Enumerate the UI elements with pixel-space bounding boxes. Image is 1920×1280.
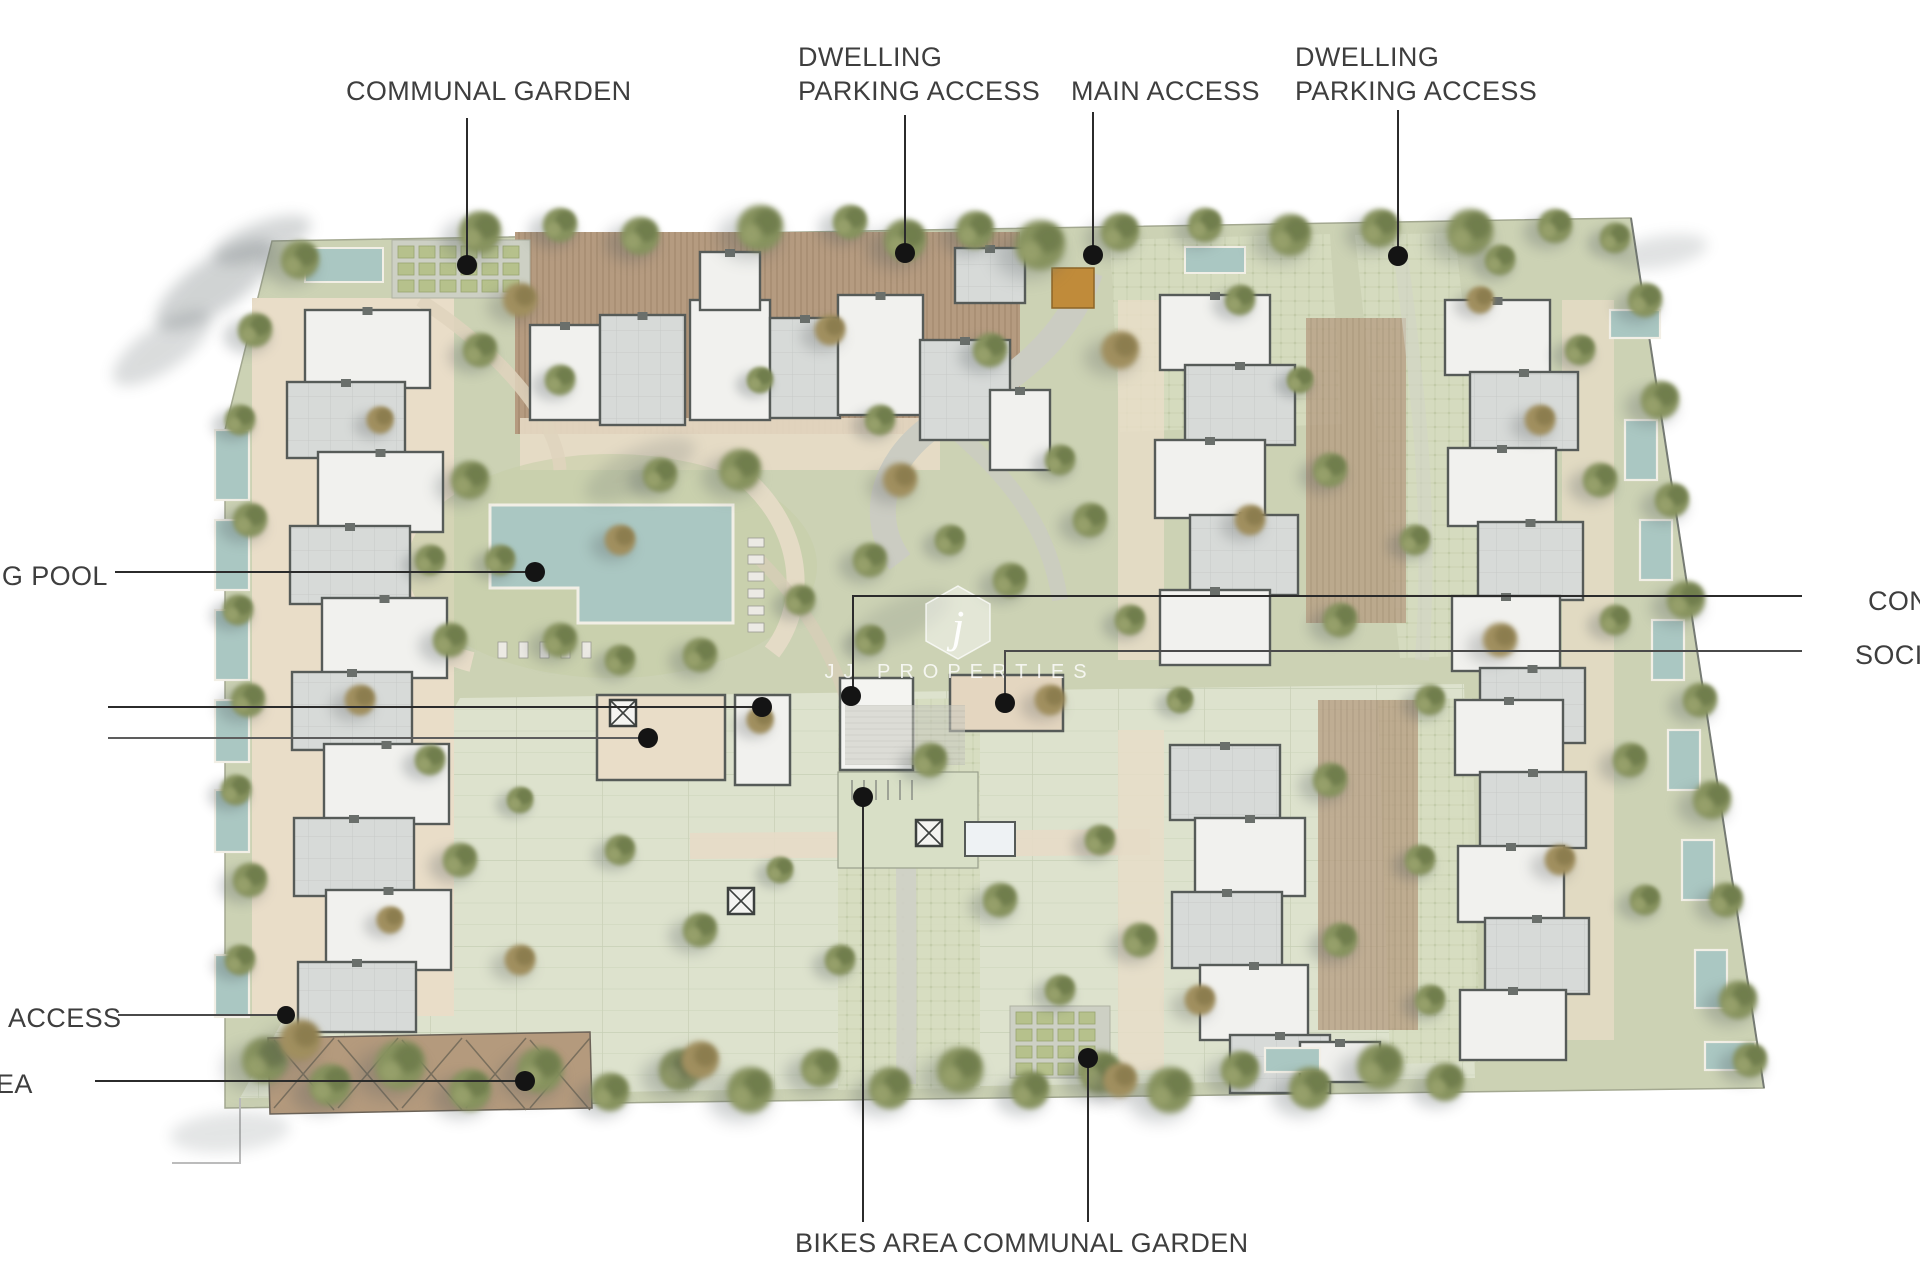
garden-bed <box>1016 1012 1032 1024</box>
roof-vent <box>341 379 351 387</box>
building-roof <box>1455 700 1563 775</box>
building-roof <box>1172 892 1282 968</box>
label-concierge-truncated: CON <box>1868 584 1920 618</box>
roof-vent <box>380 595 390 603</box>
callout-dot <box>1388 246 1408 266</box>
garden-bed <box>482 280 498 292</box>
building-roof <box>1480 772 1586 848</box>
building-roof <box>600 315 685 425</box>
roof-vent <box>1532 915 1542 923</box>
garden-bed <box>419 280 435 292</box>
roof-vent <box>352 959 362 967</box>
garden-bed <box>1037 1063 1053 1075</box>
callout-dot <box>1083 245 1103 265</box>
sun-lounger <box>748 606 764 615</box>
sun-lounger <box>748 538 764 547</box>
building-roof <box>700 252 760 310</box>
roof-vent <box>1526 519 1536 527</box>
private-pool <box>1668 730 1700 790</box>
building-roof <box>305 310 430 388</box>
roof-vent <box>1235 362 1245 370</box>
roof-vent <box>1508 987 1518 995</box>
label-main-access: MAIN ACCESS <box>1071 74 1260 108</box>
garden-bed <box>1037 1046 1053 1058</box>
roof-vent <box>376 449 386 457</box>
label-access-truncated: ACCESS <box>8 1001 121 1035</box>
building-roof <box>290 526 410 604</box>
label-area-truncated: EA <box>0 1067 33 1101</box>
building-roof <box>1460 990 1566 1060</box>
garden-bed <box>1037 1012 1053 1024</box>
roof-vent <box>363 307 373 315</box>
callout-dot <box>457 255 477 275</box>
callout-dot <box>995 693 1015 713</box>
garden-bed <box>1058 1046 1074 1058</box>
roof-vent <box>1275 1032 1285 1040</box>
roof-vent <box>1222 889 1232 897</box>
label-line: DWELLING <box>1295 40 1537 74</box>
garden-bed <box>482 263 498 275</box>
garden-bed <box>398 280 414 292</box>
roof-vent <box>1506 843 1516 851</box>
callout-dot <box>525 562 545 582</box>
building-roof <box>318 452 443 532</box>
garden-bed <box>419 246 435 258</box>
roof-vent <box>1497 445 1507 453</box>
sun-lounger <box>748 555 764 564</box>
label-dwelling-parking-left: DWELLING PARKING ACCESS <box>798 40 1040 108</box>
callout-dot <box>841 686 861 706</box>
building-roof <box>1170 745 1280 820</box>
label-bikes-area: BIKES AREA <box>795 1226 958 1260</box>
callout-dot <box>277 1006 295 1024</box>
roof-vent <box>384 887 394 895</box>
building-roof <box>838 295 923 415</box>
roof-vent <box>1504 697 1514 705</box>
building-roof <box>1478 522 1583 600</box>
site-plan-canvas: j JJ PROPERTIES COMMUNAL GARDEN DWELLING… <box>0 0 1920 1280</box>
garden-bed <box>461 280 477 292</box>
roof-vent <box>1249 962 1259 970</box>
callout-dot <box>515 1071 535 1091</box>
garden-bed <box>1016 1046 1032 1058</box>
label-communal-garden-top: COMMUNAL GARDEN <box>346 74 632 108</box>
building-roof <box>1185 365 1295 445</box>
building-roof <box>294 818 414 896</box>
private-pool <box>1640 520 1672 580</box>
garden-bed <box>1079 1029 1095 1041</box>
roof-vent <box>1519 369 1529 377</box>
roof-vent <box>1220 742 1230 750</box>
label-social-truncated: SOCIA <box>1855 638 1920 672</box>
building-roof <box>298 962 416 1032</box>
building-roof <box>1195 818 1305 896</box>
garden-bed <box>1058 1012 1074 1024</box>
roof-vent <box>1205 437 1215 445</box>
roof-vent <box>1335 1039 1345 1047</box>
garden-bed <box>503 263 519 275</box>
label-line: PARKING ACCESS <box>798 74 1040 108</box>
main-access-gate <box>1052 268 1094 308</box>
garden-bed <box>419 263 435 275</box>
callout-dot <box>853 787 873 807</box>
roof-vent <box>1015 387 1025 395</box>
building-roof <box>1448 448 1556 526</box>
roof-vent <box>1493 297 1503 305</box>
callout-dot <box>1078 1048 1098 1068</box>
roof-vent <box>560 322 570 330</box>
garden-bed <box>440 263 456 275</box>
site-plan-map: j JJ PROPERTIES <box>0 0 1920 1280</box>
label-communal-garden-bottom: COMMUNAL GARDEN <box>963 1226 1249 1260</box>
sun-lounger <box>498 642 507 658</box>
garden-bed <box>1037 1029 1053 1041</box>
roof-vent <box>347 669 357 677</box>
callout-dot <box>895 243 915 263</box>
garden-bed <box>440 280 456 292</box>
sun-lounger <box>748 572 764 581</box>
garden-bed <box>503 246 519 258</box>
garden-bed <box>398 246 414 258</box>
building-roof <box>1485 918 1589 994</box>
roof-vent <box>345 523 355 531</box>
roof-vent <box>1245 815 1255 823</box>
label-dwelling-parking-right: DWELLING PARKING ACCESS <box>1295 40 1537 108</box>
building-roof <box>1200 965 1308 1040</box>
label-line: PARKING ACCESS <box>1295 74 1537 108</box>
building-roof <box>690 300 770 420</box>
roof-vent <box>349 815 359 823</box>
label-line: DWELLING <box>798 40 1040 74</box>
private-pool <box>1625 420 1657 480</box>
roof-vent <box>1528 769 1538 777</box>
label-swimming-pool-truncated: NG POOL <box>0 559 108 593</box>
sun-lounger <box>519 642 528 658</box>
garden-bed <box>1058 1029 1074 1041</box>
sun-lounger <box>748 623 764 632</box>
callout-dot <box>638 728 658 748</box>
sun-lounger <box>748 589 764 598</box>
roof-vent <box>1528 665 1538 673</box>
bikes-area-pad <box>838 772 978 868</box>
sun-lounger <box>582 642 591 658</box>
roof-vent <box>1210 587 1220 595</box>
roof-vent <box>638 312 648 320</box>
building-roof <box>1160 590 1270 665</box>
brand-text: JJ PROPERTIES <box>824 661 1095 683</box>
roof-vent <box>382 741 392 749</box>
roof-vent <box>876 292 886 300</box>
garden-bed <box>398 263 414 275</box>
garden-bed <box>1079 1012 1095 1024</box>
garden-bed <box>1016 1029 1032 1041</box>
callout-dot <box>752 697 772 717</box>
roof-vent <box>800 315 810 323</box>
